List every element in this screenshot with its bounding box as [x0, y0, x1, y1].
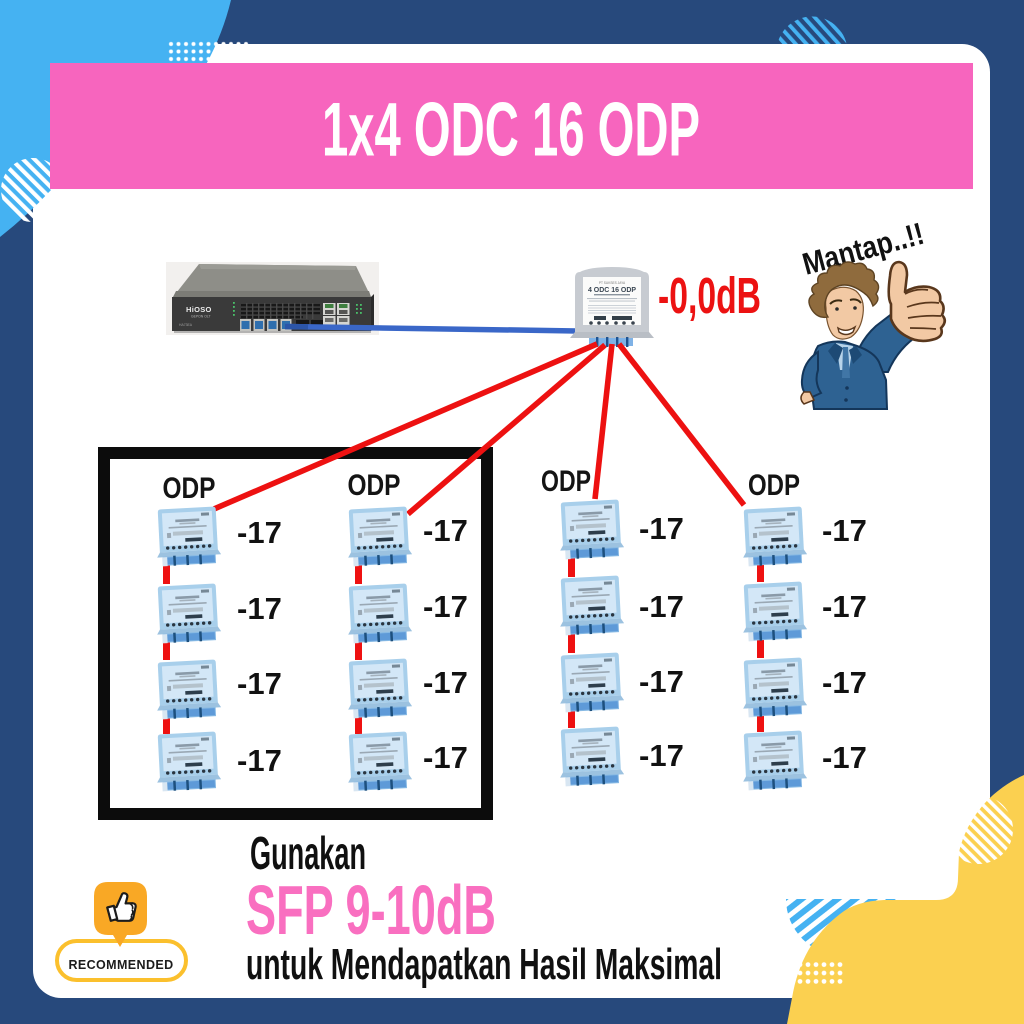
- svg-text:-17: -17: [237, 515, 282, 550]
- svg-text:-17: -17: [822, 665, 867, 700]
- svg-text:-17: -17: [639, 589, 684, 624]
- svg-text:ODP: ODP: [163, 472, 216, 505]
- svg-text:4 ODC 16 ODP: 4 ODC 16 ODP: [588, 285, 636, 294]
- svg-text:-17: -17: [237, 591, 282, 626]
- svg-text:-17: -17: [237, 743, 282, 778]
- svg-text:1x4 ODC 16 ODP: 1x4 ODC 16 ODP: [322, 88, 700, 173]
- svg-text:-0,0dB: -0,0dB: [658, 267, 761, 324]
- svg-text:HiOSO: HiOSO: [186, 305, 212, 314]
- svg-text:SFP 9-10dB: SFP 9-10dB: [246, 871, 496, 949]
- svg-text:RECOMMENDED: RECOMMENDED: [68, 958, 173, 972]
- svg-text:-17: -17: [423, 740, 468, 775]
- svg-text:ODP: ODP: [748, 469, 800, 502]
- svg-text:ODP: ODP: [541, 465, 591, 498]
- svg-text:HA73EA: HA73EA: [179, 323, 193, 327]
- svg-text:GEPON OLT: GEPON OLT: [191, 315, 211, 319]
- svg-text:-17: -17: [423, 589, 468, 624]
- svg-text:-17: -17: [237, 666, 282, 701]
- svg-text:-17: -17: [423, 513, 468, 548]
- svg-text:-17: -17: [822, 740, 867, 775]
- svg-text:-17: -17: [822, 589, 867, 624]
- svg-text:-17: -17: [639, 511, 684, 546]
- svg-text:-17: -17: [423, 665, 468, 700]
- svg-text:ODP: ODP: [348, 469, 401, 502]
- svg-text:untuk Mendapatkan Hasil Maksim: untuk Mendapatkan Hasil Maksimal: [246, 940, 722, 989]
- svg-text:-17: -17: [639, 738, 684, 773]
- svg-text:-17: -17: [639, 664, 684, 699]
- svg-text:-17: -17: [822, 513, 867, 548]
